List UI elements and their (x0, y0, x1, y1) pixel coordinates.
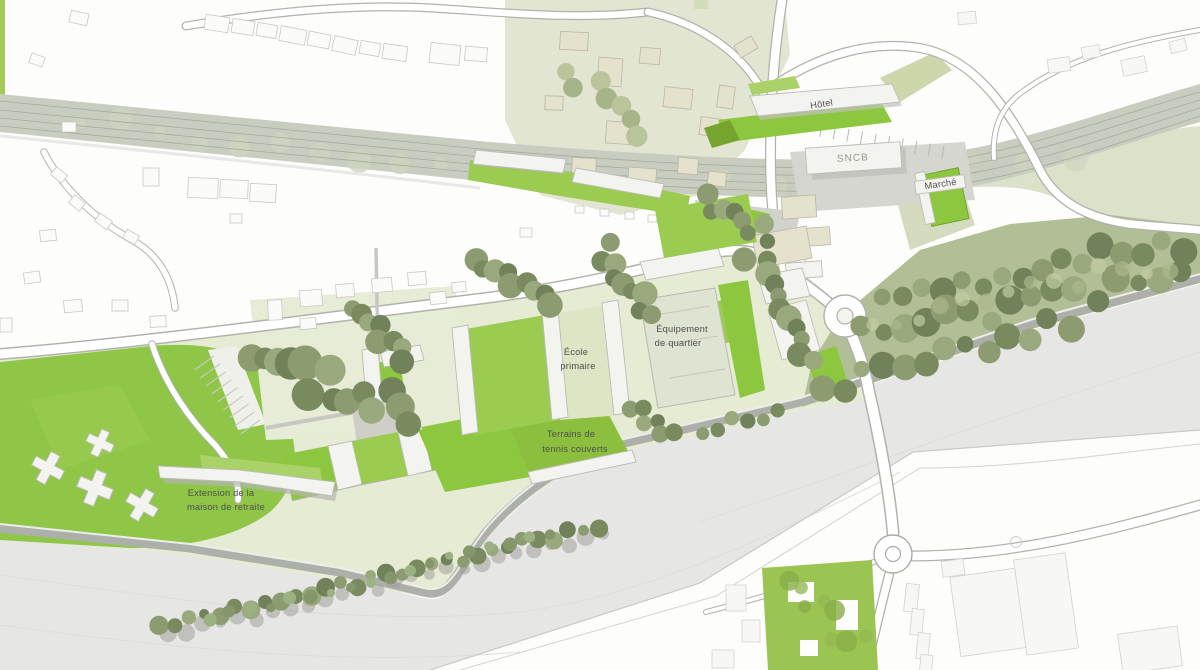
label-retirement-line2: maison de retraite (187, 502, 265, 512)
island-trees-part (524, 531, 535, 542)
green-parcel-south (762, 560, 878, 670)
forest-canopy-part (994, 323, 1020, 349)
village-buildings-part (663, 87, 693, 110)
tree-clusters-part (725, 411, 739, 425)
island-trees-part (578, 525, 589, 536)
forest-canopy-part (1115, 261, 1130, 276)
forest-canopy-part (1152, 232, 1171, 251)
forest-canopy-part (1073, 254, 1093, 274)
existing-buildings-cadastral-part (40, 229, 57, 241)
island-trees-part (304, 590, 318, 604)
forest-canopy-part (874, 289, 891, 306)
tree-clusters-part (315, 355, 346, 386)
village-buildings-part (560, 31, 589, 50)
existing-buildings-cadastral-part (382, 43, 408, 61)
forest-canopy-part (867, 319, 879, 331)
existing-buildings-cadastral-part (300, 317, 317, 329)
existing-buildings-cadastral-part (408, 271, 427, 286)
label-tennis-line2: tennis couverts (542, 444, 608, 454)
tree-clusters-part (711, 423, 725, 437)
island-trees-part (405, 565, 416, 576)
tree-clusters-part (642, 305, 661, 324)
industrial-area-south-part (1118, 626, 1183, 670)
forest-canopy-part (892, 355, 918, 381)
forest-canopy-part (834, 379, 857, 402)
industrial-area-south-part (919, 654, 933, 670)
existing-buildings-cadastral-part (452, 281, 467, 292)
existing-buildings-cadastral-part (336, 283, 355, 297)
label-station: SNCB (837, 152, 869, 165)
tree-clusters-part (859, 629, 873, 643)
forest-canopy-part (810, 375, 836, 401)
existing-buildings-cadastral-part (62, 122, 76, 132)
existing-buildings-cadastral-part (150, 316, 167, 328)
tree-clusters-part (757, 414, 770, 427)
forest-canopy-part (1162, 263, 1178, 279)
tree-clusters-part (740, 225, 756, 241)
island-trees-part (346, 583, 355, 592)
retirement-home-park-part (0, 345, 295, 548)
forest-canopy-part (932, 337, 956, 361)
industrial-area-south-part (800, 640, 818, 656)
island-trees-part (503, 537, 517, 551)
existing-buildings-cadastral-part (429, 291, 446, 305)
tree-clusters-part (665, 423, 683, 441)
existing-buildings-cadastral-part (648, 215, 657, 222)
forest-canopy-part (993, 267, 1011, 285)
tree-clusters-part (760, 234, 775, 249)
forest-canopy-part (1036, 308, 1057, 329)
label-retirement-line1: Extension de la (188, 488, 255, 498)
island-trees-part (266, 603, 275, 612)
industrial-area-south-part (941, 559, 965, 578)
island-trees-part (223, 605, 235, 617)
existing-buildings-cadastral-part (520, 228, 532, 237)
island-shadow-part (424, 569, 435, 580)
forest-canopy-part (975, 278, 992, 295)
island-trees-part (204, 613, 217, 626)
existing-buildings-cadastral-part (188, 177, 219, 198)
tree-clusters-part (636, 415, 652, 431)
island-trees-part (327, 589, 335, 597)
island-trees-part (384, 571, 397, 584)
forest-canopy-part (1170, 238, 1197, 265)
existing-buildings-cadastral-part (231, 18, 255, 35)
industrial-area-south-part (904, 583, 920, 612)
island-trees-part (545, 529, 555, 539)
tree-clusters-part (396, 411, 422, 437)
forest-canopy-part (955, 291, 970, 306)
forest-canopy-part (913, 315, 925, 327)
roundabout-south (874, 535, 912, 573)
tree-clusters-part (390, 349, 415, 374)
forest-canopy-part (953, 271, 971, 289)
forest-canopy-part (1003, 286, 1015, 298)
roundabout-north-part (837, 308, 853, 324)
existing-buildings-cadastral-part (625, 212, 634, 219)
village-buildings-part (717, 85, 736, 109)
existing-buildings-cadastral-part (1047, 57, 1071, 74)
masterplan-canvas: Hôtel SNCB Marché Équipement de quartier… (0, 0, 1200, 670)
masterplan-svg: Hôtel SNCB Marché Équipement de quartier… (0, 0, 1200, 670)
island-trees-part (463, 545, 476, 558)
tree-clusters-part (626, 126, 647, 147)
forest-canopy-part (854, 361, 870, 377)
island-trees-part (167, 618, 182, 633)
existing-buildings-cadastral-part (429, 42, 461, 65)
island-trees-part (149, 616, 168, 635)
railway-corridor-part-part (154, 126, 166, 138)
existing-buildings-cadastral-part (250, 183, 277, 202)
label-equipment-line1: Équipement (656, 324, 708, 334)
village-buildings-part (639, 47, 660, 65)
tree-clusters-part (557, 63, 574, 80)
forest-canopy-part (1019, 328, 1042, 351)
forest-canopy-part (1046, 273, 1062, 289)
forest-canopy-part (1131, 243, 1154, 266)
forest-canopy-part (1087, 290, 1109, 312)
label-school-line1: École (564, 347, 588, 357)
island-trees-part (283, 591, 296, 604)
tree-clusters-part (563, 78, 583, 98)
tree-clusters-part (804, 351, 823, 370)
tree-clusters-part (798, 600, 811, 613)
railway-corridor-part-part (310, 142, 330, 162)
tree-clusters-part (697, 183, 719, 205)
roundabout-south-part (886, 547, 901, 562)
retirement-home-park (0, 345, 295, 548)
existing-buildings-cadastral-part (958, 11, 977, 25)
island-trees-part (182, 610, 196, 624)
industrial-area-south-part (712, 650, 734, 668)
forest-canopy-part (891, 320, 901, 330)
existing-buildings-cadastral-part (204, 14, 230, 33)
label-equipment-line2: de quartier (655, 338, 702, 348)
existing-buildings-cadastral-part (64, 299, 83, 313)
existing-buildings-cadastral-part (220, 180, 249, 199)
industrial-area-south-part (742, 620, 760, 642)
tree-clusters-part (732, 247, 756, 271)
forest-canopy-part (1021, 286, 1042, 307)
tree-clusters-part (601, 233, 620, 252)
village-buildings-part (677, 157, 698, 175)
label-tennis-line1: Terrains de (547, 429, 595, 439)
existing-buildings-cadastral-part (600, 209, 609, 216)
island-trees-part (484, 541, 494, 551)
forest-canopy-part (932, 297, 949, 314)
forest-canopy-part (893, 287, 912, 306)
village-buildings-part (545, 96, 563, 111)
forest-canopy-part (1058, 316, 1085, 343)
forest-canopy-part (1141, 268, 1152, 279)
forest-canopy-part (1087, 232, 1114, 259)
existing-buildings-cadastral-part (23, 271, 40, 284)
forest-canopy-part (1051, 248, 1072, 269)
left-edge-green-strip (0, 0, 5, 98)
industrial-area-south-part (910, 608, 925, 635)
tree-clusters-part (358, 397, 385, 424)
existing-buildings-cadastral-part (371, 277, 392, 293)
island-trees-part (425, 559, 434, 568)
forest-canopy-part (957, 336, 974, 353)
existing-buildings-cadastral-part (299, 289, 322, 306)
existing-buildings-cadastral-part (143, 168, 159, 186)
forest-canopy-part (1090, 258, 1106, 274)
tree-clusters-part (794, 581, 808, 595)
village-buildings-part (781, 195, 816, 219)
tree-clusters-part (754, 214, 774, 234)
tree-clusters-part (771, 403, 785, 417)
label-school-line2: primaire (560, 361, 595, 371)
tree-clusters-part (740, 413, 755, 428)
island-shadow-part (562, 538, 577, 553)
island-trees-part (445, 552, 453, 560)
existing-buildings-cadastral-part (1081, 45, 1101, 60)
forest-canopy-part (1072, 281, 1085, 294)
tree-clusters-part (622, 110, 641, 129)
tree-clusters-part (836, 631, 857, 652)
railway-corridor-part-part (270, 133, 290, 153)
tree-clusters-part (537, 292, 563, 318)
island-trees-part (559, 521, 576, 538)
tree-clusters-part (292, 378, 325, 411)
railway-corridor-part-part (109, 108, 132, 131)
island-trees-part (366, 579, 375, 588)
existing-buildings-cadastral-part (267, 300, 282, 321)
forest-canopy-part (978, 293, 995, 310)
forest-canopy-part (1024, 276, 1037, 289)
island-trees-part (243, 602, 257, 616)
forest-canopy-part (869, 352, 896, 379)
industrial-area-south-part (726, 585, 746, 611)
island-trees-part (590, 520, 608, 538)
tree-clusters-part (696, 427, 709, 440)
tree-clusters-part (824, 600, 845, 621)
existing-buildings-cadastral-part (464, 46, 487, 62)
railway-corridor-part-part (228, 136, 250, 158)
forest-canopy-part (913, 278, 932, 297)
tree-clusters-part (635, 400, 652, 417)
existing-buildings-cadastral-part (112, 300, 128, 311)
existing-buildings-cadastral-part (230, 214, 242, 223)
existing-buildings-cadastral-part (0, 318, 12, 332)
existing-buildings-cadastral-part (575, 206, 584, 213)
island-trees-part (334, 576, 347, 589)
